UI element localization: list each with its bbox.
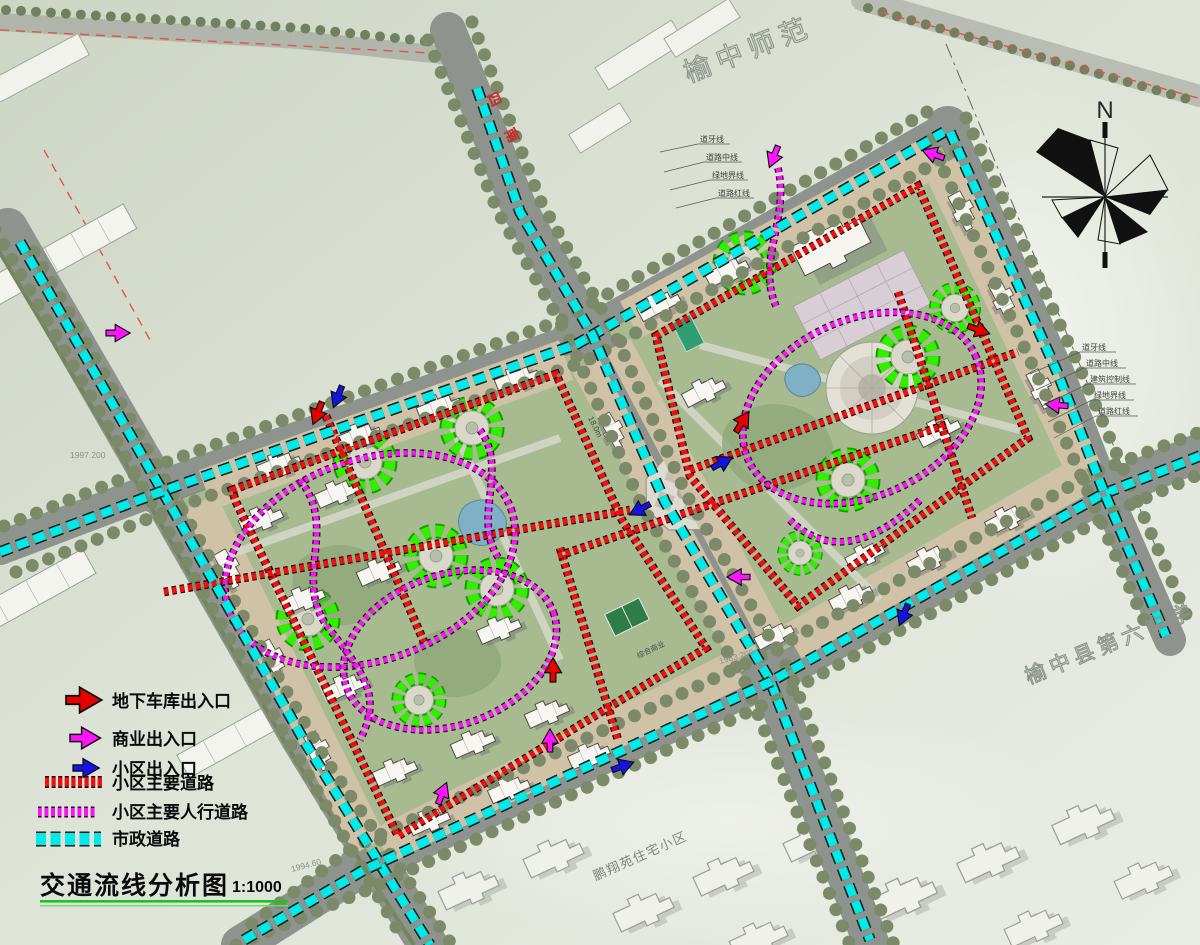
callout-label: 道牙线 [1082, 342, 1106, 352]
tree-ring-plaza [783, 536, 818, 571]
callout-label: 道路红线 [1098, 406, 1130, 416]
callout-label: 道路红线 [718, 188, 750, 198]
site-plan-canvas: 综合商业 [0, 0, 1200, 945]
title-underline [40, 900, 288, 903]
callout-label: 建筑控制线 [1090, 374, 1130, 384]
legend-label: 商业出入口 [112, 729, 197, 749]
title-underline-2 [40, 905, 288, 906]
callout-label: 道路中线 [706, 152, 738, 162]
compass-north-letter: N [1096, 97, 1113, 124]
tree-ring-plaza [398, 679, 441, 722]
callout-label: 道牙线 [700, 134, 724, 144]
legend-label: 地下车库出入口 [112, 691, 231, 711]
callout-label: 道路中线 [1086, 358, 1118, 368]
legend-label: 小区主要道路 [112, 773, 215, 793]
callout-label: 绿地界线 [1094, 390, 1126, 400]
legend-label: 小区主要人行道路 [112, 802, 249, 822]
tree-ring-plaza [883, 332, 933, 382]
legend-label: 市政道路 [112, 829, 181, 849]
traffic-flow-analysis-map: 综合商业 [0, 0, 1200, 945]
elevation-value: 1997.200 [70, 450, 106, 460]
callout-label: 绿地界线 [712, 170, 744, 180]
map-scale: 1:1000 [232, 879, 282, 896]
map-title: 交通流线分析图 [40, 871, 229, 900]
